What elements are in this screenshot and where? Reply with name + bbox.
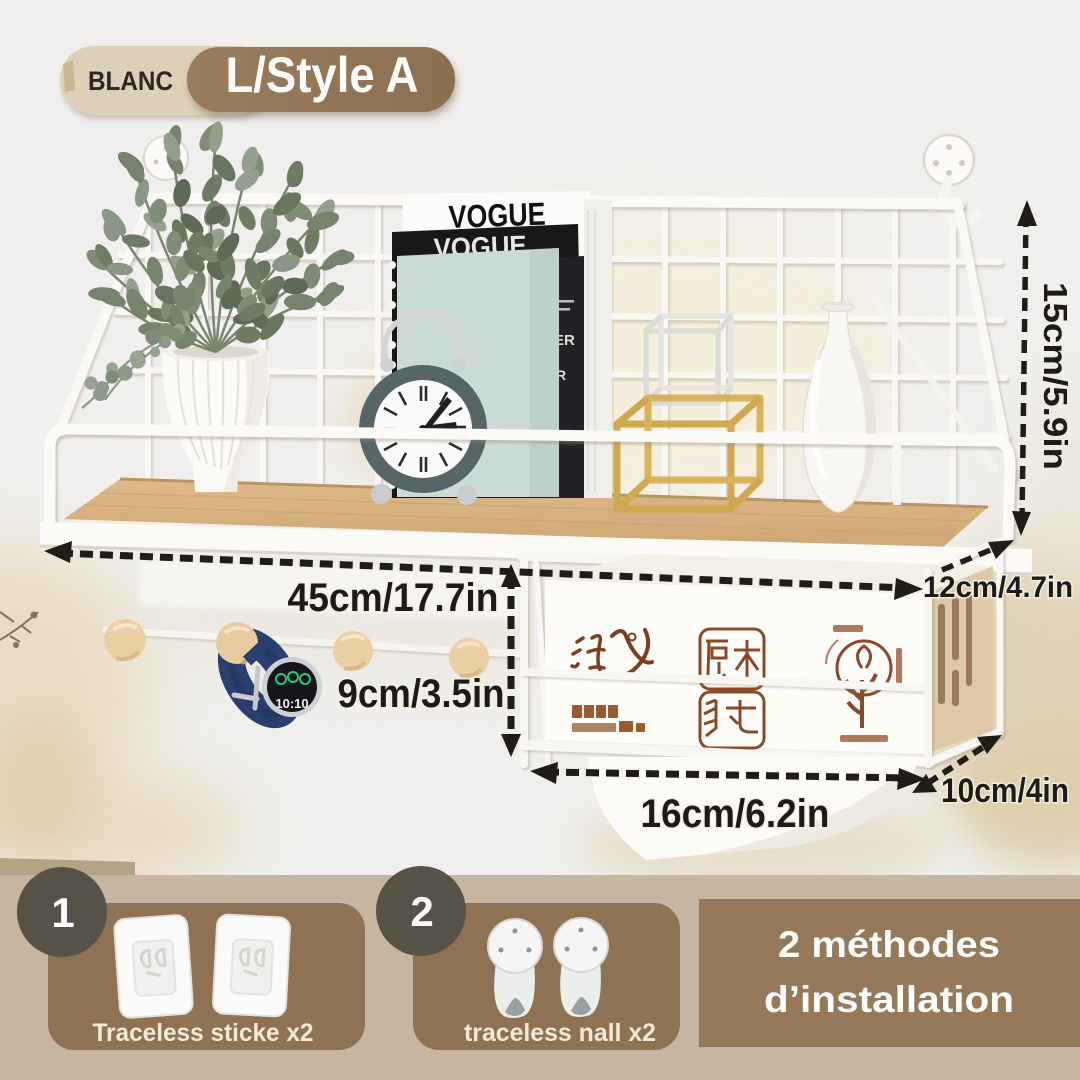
svg-text:d’installation: d’installation: [764, 979, 1014, 1020]
svg-text:2: 2: [410, 888, 433, 935]
svg-text:1: 1: [51, 889, 74, 936]
svg-text:10cm/4in: 10cm/4in: [941, 772, 1069, 810]
svg-text:45cm/17.7in: 45cm/17.7in: [288, 576, 499, 620]
svg-text:2 méthodes: 2 méthodes: [778, 924, 1000, 965]
svg-text:BLANC: BLANC: [88, 66, 173, 96]
svg-text:Traceless sticke x2: Traceless sticke x2: [93, 1019, 314, 1047]
svg-text:12cm/4.7in: 12cm/4.7in: [923, 571, 1073, 604]
svg-text:9cm/3.5in: 9cm/3.5in: [338, 672, 505, 716]
svg-text:16cm/6.2in: 16cm/6.2in: [641, 792, 830, 836]
svg-text:15cm/5.9in: 15cm/5.9in: [1037, 282, 1074, 470]
svg-text:L/Style A: L/Style A: [226, 47, 419, 103]
svg-text:traceless nall x2: traceless nall x2: [464, 1019, 656, 1047]
svg-text:10:10: 10:10: [275, 696, 308, 711]
